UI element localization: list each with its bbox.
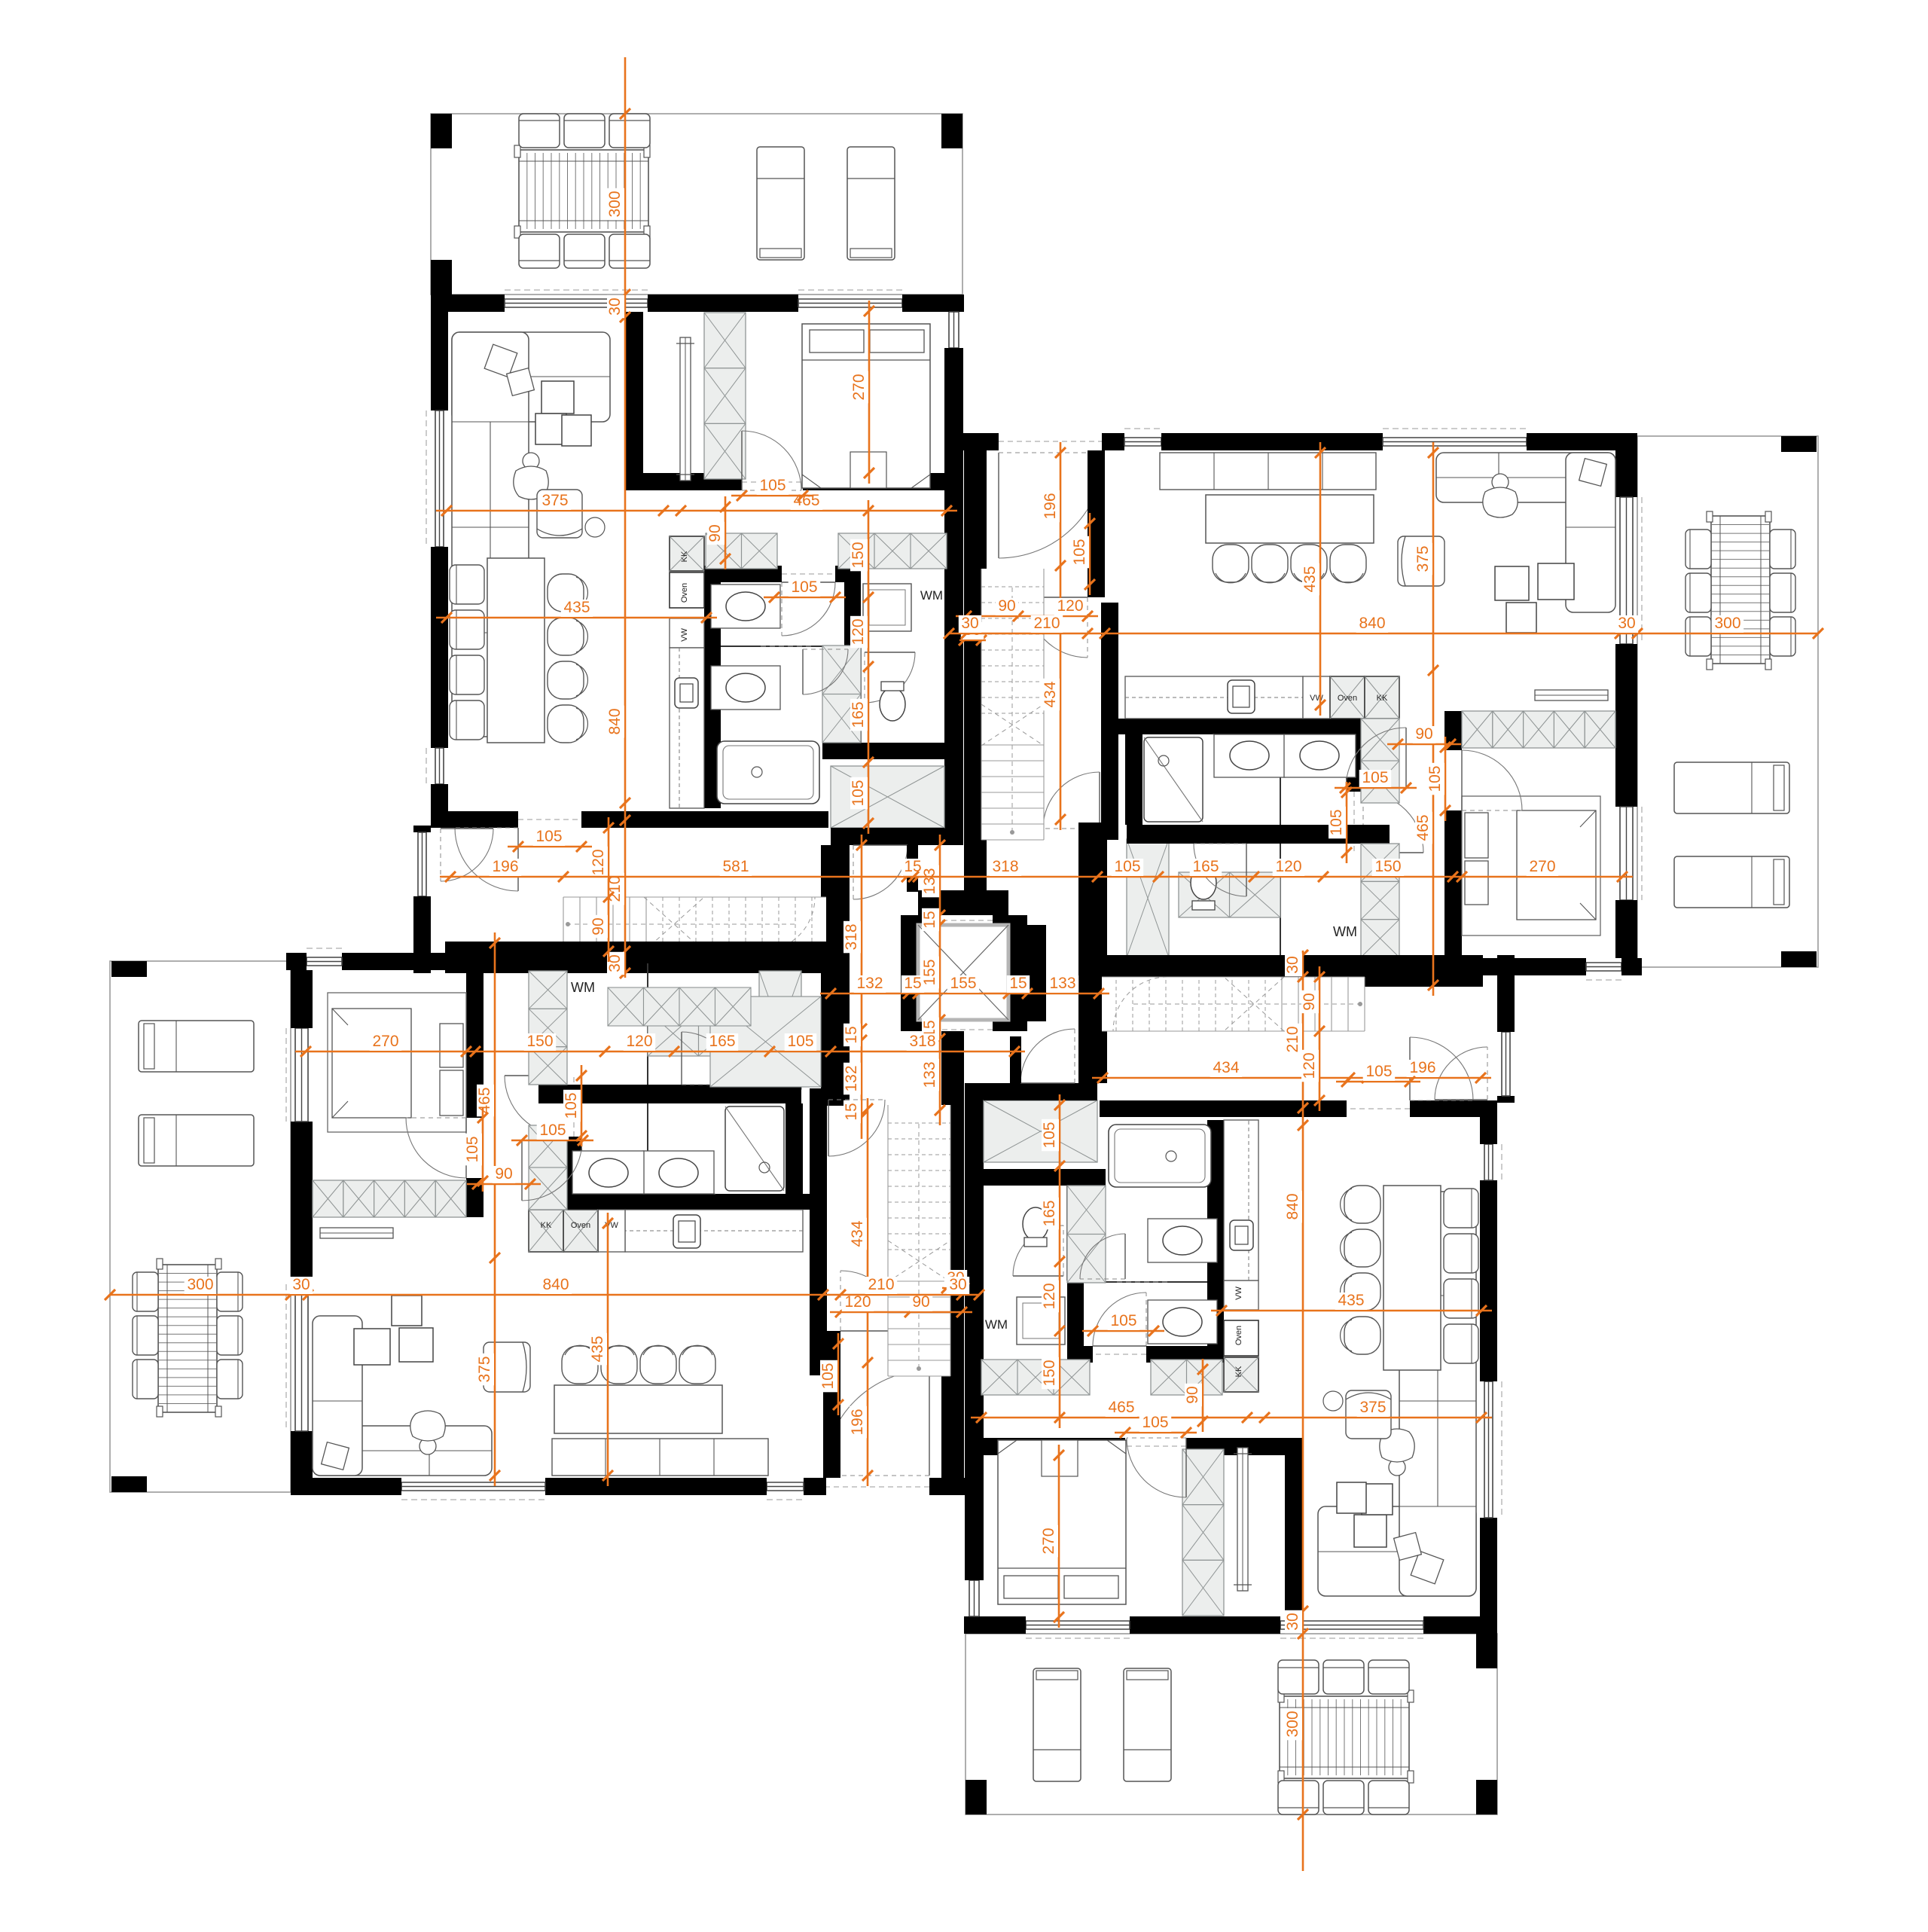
svg-text:Oven: Oven <box>1234 1326 1243 1345</box>
svg-text:840: 840 <box>1284 1193 1301 1219</box>
svg-text:WM: WM <box>1333 924 1357 939</box>
svg-text:375: 375 <box>1359 1399 1386 1416</box>
svg-text:15: 15 <box>1009 975 1027 992</box>
svg-text:KK: KK <box>1377 694 1388 703</box>
svg-text:120: 120 <box>1275 858 1301 875</box>
svg-text:465: 465 <box>476 1087 493 1113</box>
svg-text:105: 105 <box>1071 539 1088 565</box>
svg-text:KK: KK <box>541 1221 552 1230</box>
svg-text:120: 120 <box>590 849 607 875</box>
svg-text:434: 434 <box>1042 681 1059 707</box>
svg-text:133: 133 <box>921 1061 938 1088</box>
svg-text:270: 270 <box>850 374 868 400</box>
svg-text:133: 133 <box>921 868 938 894</box>
svg-text:150: 150 <box>1041 1360 1058 1386</box>
svg-text:Oven: Oven <box>680 583 689 603</box>
svg-text:300: 300 <box>187 1276 213 1293</box>
svg-text:90: 90 <box>912 1293 929 1311</box>
svg-text:196: 196 <box>1042 493 1059 519</box>
svg-text:581: 581 <box>722 858 749 875</box>
svg-text:434: 434 <box>1213 1059 1239 1076</box>
svg-text:30: 30 <box>961 615 978 632</box>
svg-text:15: 15 <box>843 1026 860 1043</box>
svg-text:155: 155 <box>921 959 938 985</box>
svg-text:196: 196 <box>492 858 518 875</box>
svg-text:KK: KK <box>1234 1366 1243 1377</box>
svg-text:105: 105 <box>1110 1312 1136 1329</box>
svg-text:WM: WM <box>920 588 943 603</box>
svg-text:30: 30 <box>1618 615 1635 632</box>
svg-text:840: 840 <box>1359 615 1385 632</box>
svg-text:120: 120 <box>844 1293 871 1311</box>
svg-text:105: 105 <box>464 1136 481 1162</box>
svg-text:105: 105 <box>535 828 562 845</box>
svg-text:105: 105 <box>1362 769 1388 786</box>
svg-text:105: 105 <box>1041 1122 1058 1148</box>
svg-text:435: 435 <box>1301 566 1319 592</box>
svg-text:132: 132 <box>856 975 883 992</box>
svg-text:150: 150 <box>850 542 867 568</box>
svg-text:30: 30 <box>949 1276 966 1293</box>
svg-text:105: 105 <box>850 780 867 806</box>
svg-text:105: 105 <box>787 1033 813 1050</box>
svg-text:90: 90 <box>590 917 607 935</box>
svg-text:120: 120 <box>850 618 867 645</box>
svg-text:165: 165 <box>1192 858 1219 875</box>
svg-text:30: 30 <box>1284 1613 1301 1630</box>
svg-text:Oven: Oven <box>1338 694 1357 703</box>
svg-text:30: 30 <box>292 1276 310 1293</box>
svg-text:840: 840 <box>606 708 624 734</box>
svg-text:30: 30 <box>1284 956 1301 973</box>
svg-text:120: 120 <box>1301 1052 1318 1079</box>
svg-text:270: 270 <box>1040 1528 1057 1554</box>
svg-text:90: 90 <box>998 597 1015 615</box>
svg-text:150: 150 <box>526 1033 553 1050</box>
svg-text:434: 434 <box>849 1220 866 1247</box>
svg-text:300: 300 <box>1714 615 1740 632</box>
svg-text:Oven: Oven <box>571 1221 590 1230</box>
svg-text:KK: KK <box>680 551 689 562</box>
svg-text:105: 105 <box>1328 809 1345 835</box>
svg-text:VW: VW <box>1310 694 1323 703</box>
svg-text:90: 90 <box>706 524 724 542</box>
svg-text:30: 30 <box>606 298 624 315</box>
svg-text:90: 90 <box>1184 1386 1201 1403</box>
svg-text:105: 105 <box>791 578 817 596</box>
svg-text:15: 15 <box>843 1103 860 1120</box>
svg-text:196: 196 <box>1409 1059 1435 1076</box>
svg-text:15: 15 <box>921 911 938 928</box>
svg-text:105: 105 <box>1142 1414 1168 1431</box>
svg-text:90: 90 <box>1415 725 1432 743</box>
svg-text:WM: WM <box>571 980 595 995</box>
svg-text:155: 155 <box>950 975 976 992</box>
svg-text:120: 120 <box>1057 597 1083 615</box>
svg-text:165: 165 <box>709 1033 735 1050</box>
svg-text:318: 318 <box>843 923 860 950</box>
svg-text:318: 318 <box>909 1033 935 1050</box>
svg-text:105: 105 <box>1365 1063 1392 1080</box>
svg-text:465: 465 <box>1414 814 1432 841</box>
svg-text:465: 465 <box>1108 1399 1134 1416</box>
svg-text:120: 120 <box>1041 1283 1058 1309</box>
svg-text:132: 132 <box>843 1065 860 1091</box>
svg-text:105: 105 <box>759 477 786 494</box>
svg-text:90: 90 <box>495 1165 512 1183</box>
svg-text:300: 300 <box>1284 1711 1301 1737</box>
svg-text:WM: WM <box>985 1317 1008 1332</box>
svg-text:120: 120 <box>626 1033 652 1050</box>
svg-text:375: 375 <box>541 492 568 509</box>
svg-text:300: 300 <box>606 191 624 217</box>
svg-text:150: 150 <box>1374 858 1401 875</box>
svg-text:VW: VW <box>680 628 689 642</box>
svg-text:105: 105 <box>539 1122 566 1139</box>
svg-text:375: 375 <box>1414 545 1432 572</box>
svg-text:105: 105 <box>819 1363 837 1389</box>
svg-text:210: 210 <box>1033 615 1060 632</box>
svg-text:210: 210 <box>1284 1026 1301 1052</box>
svg-text:165: 165 <box>850 701 867 728</box>
svg-text:90: 90 <box>1301 993 1318 1010</box>
svg-text:270: 270 <box>372 1033 398 1050</box>
svg-text:196: 196 <box>849 1409 866 1435</box>
svg-text:VW: VW <box>1234 1286 1243 1300</box>
svg-text:133: 133 <box>1049 975 1075 992</box>
svg-text:105: 105 <box>1426 765 1444 792</box>
svg-text:840: 840 <box>542 1276 569 1293</box>
svg-text:165: 165 <box>1041 1200 1058 1226</box>
svg-text:210: 210 <box>868 1276 894 1293</box>
svg-text:318: 318 <box>992 858 1018 875</box>
svg-text:435: 435 <box>589 1335 606 1362</box>
svg-text:105: 105 <box>1114 858 1140 875</box>
svg-text:435: 435 <box>563 599 590 616</box>
svg-text:375: 375 <box>476 1356 493 1382</box>
svg-text:105: 105 <box>563 1092 580 1119</box>
svg-text:15: 15 <box>904 975 921 992</box>
svg-text:270: 270 <box>1529 858 1555 875</box>
svg-text:435: 435 <box>1338 1292 1364 1309</box>
